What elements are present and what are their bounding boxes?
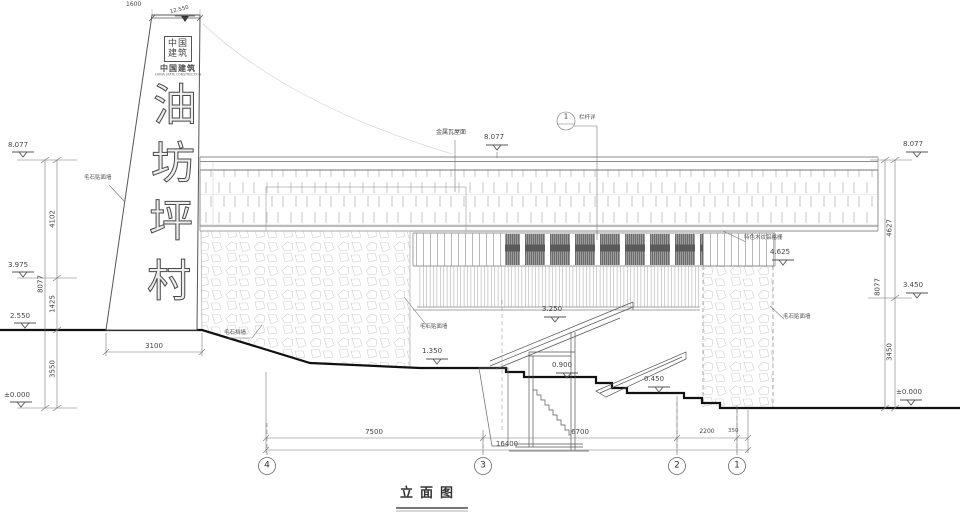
right-elev-top: 8.077 <box>903 141 923 148</box>
level-1350: 1.350 <box>422 348 442 355</box>
grid-number-1: 1 <box>734 462 740 471</box>
grid-number-2: 2 <box>674 462 680 471</box>
ground-line <box>0 330 960 408</box>
stone-wall-label-right: 毛石贴面墙 <box>783 315 811 321</box>
grille-label: 特色木纹铝格栅 <box>744 236 783 242</box>
grid-number-4: 4 <box>264 462 270 471</box>
dim-7500: 7500 <box>349 429 399 436</box>
dim-2200: 2200 <box>687 429 727 435</box>
dim-16400: 16400 <box>482 441 532 448</box>
left-total: 8077 <box>38 275 45 293</box>
logo-name-en: CHINA STATE CONSTRUCTION <box>155 73 202 76</box>
grid-number-3: 3 <box>480 462 486 471</box>
landing-elevation: 3.250 <box>542 306 562 313</box>
grille-elevation: 4.625 <box>770 249 790 256</box>
drawing-title: 立面图 <box>400 487 460 500</box>
right-total: 8077 <box>875 278 882 296</box>
right-elev-zero: ±0.000 <box>896 389 922 396</box>
roof-material-label: 金属瓦屋面 <box>436 130 466 136</box>
left-elev-mid: 3.975 <box>8 262 28 269</box>
sign-char-1: 油 <box>152 84 198 128</box>
left-seg-bottom: 3550 <box>50 360 57 378</box>
stone-wall-label-left: 毛石贴面墙 <box>84 176 112 182</box>
sign-base-dim: 3100 <box>139 343 169 350</box>
right-seg-top: 4627 <box>887 219 894 237</box>
sign-width-dim: 1600 <box>126 2 141 8</box>
right-seg-bottom: 3450 <box>887 343 894 361</box>
sign-char-2: 坊 <box>150 142 196 186</box>
left-seg-top: 4102 <box>50 210 57 228</box>
callout-number: 1 <box>564 114 568 121</box>
drawing-linework <box>0 0 960 518</box>
stone-retaining-label: 毛石挡墙 <box>224 331 246 337</box>
sign-char-4: 村 <box>146 260 192 304</box>
fine-slat-band <box>417 266 700 307</box>
left-seg-mid: 1425 <box>50 295 57 313</box>
level-0900: 0.900 <box>552 362 572 369</box>
roof-band <box>200 24 878 231</box>
sign-char-3: 坪 <box>148 200 194 244</box>
roof-elevation: 8.077 <box>484 134 504 141</box>
level-0450: 0.450 <box>644 376 664 383</box>
grid-bubbles <box>259 458 746 475</box>
elevation-drawing: 1600 12.550 中国建筑 中国建筑 CHINA STATE CONSTR… <box>0 0 960 518</box>
logo-seal-characters: 中国建筑 <box>168 39 190 59</box>
stone-wall-label-mid: 毛石贴面墙 <box>420 325 448 331</box>
wood-grain-grille-panels <box>505 234 703 265</box>
dim-350: 350 <box>728 429 739 435</box>
ramp-railing <box>596 352 686 397</box>
right-elev-mid: 3.450 <box>903 282 923 289</box>
company-logo-seal: 中国建筑 <box>164 36 192 62</box>
callout-label: 栏杆详 <box>579 116 596 122</box>
left-elev-zero: ±0.000 <box>4 392 30 399</box>
logo-name-cn: 中国建筑 <box>158 64 198 72</box>
left-elev-ground: 2.550 <box>10 313 30 320</box>
dim-6700: 6700 <box>555 429 605 436</box>
left-elev-top: 8.077 <box>8 142 28 149</box>
